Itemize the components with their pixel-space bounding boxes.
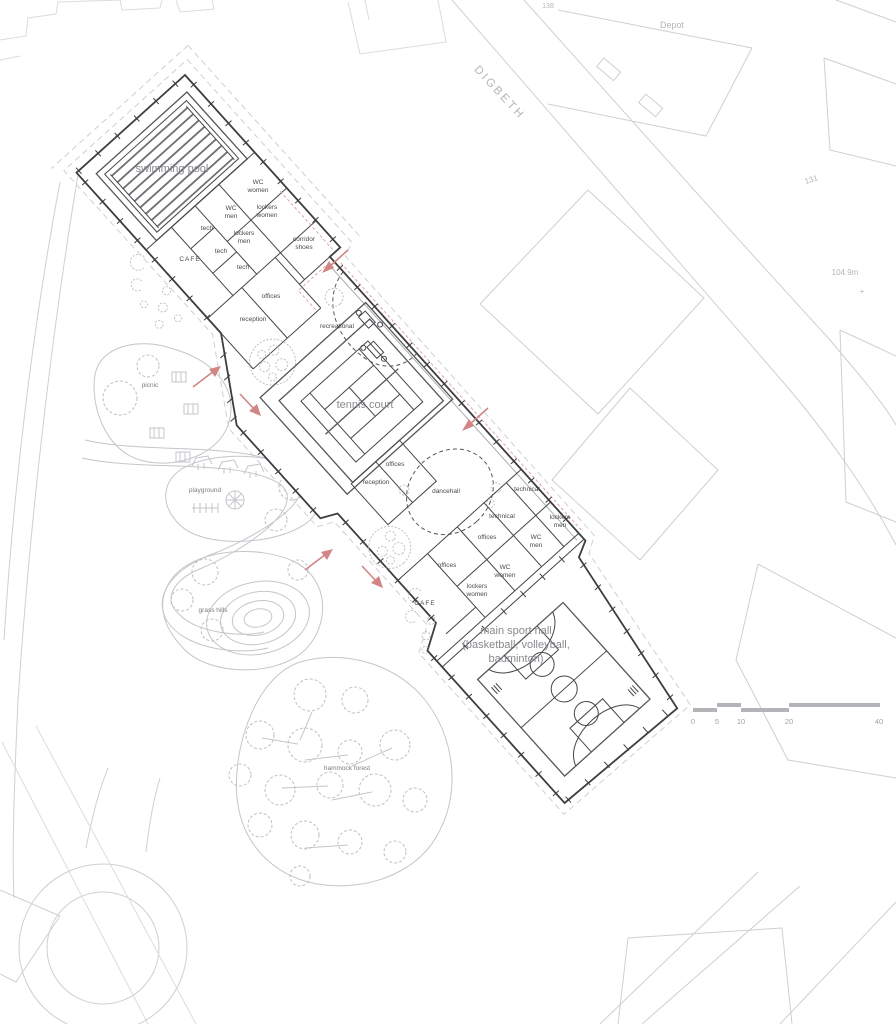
room-label-men: men <box>238 238 251 245</box>
scale-segment <box>789 703 880 707</box>
tree-icon <box>403 788 427 812</box>
hammock-lines <box>262 712 392 848</box>
scale-segment <box>693 708 717 712</box>
grass-hills-area <box>163 551 323 669</box>
climbing-frame-icon <box>192 503 218 513</box>
parked-car-icon <box>597 58 621 81</box>
room-label-tech: tech <box>237 264 250 271</box>
room-label-men: men <box>225 213 238 220</box>
east-block-building <box>480 190 704 414</box>
main-hall-label-line1: main sport hall <box>480 625 552 637</box>
room-label-technical: technical <box>514 486 540 493</box>
building-outline <box>33 75 721 807</box>
room-label-cafe: CAFE <box>414 600 435 607</box>
room-label-corridor: corridor <box>293 236 316 243</box>
scale-tick-10: 10 <box>737 717 745 726</box>
roundabout-inner-ring <box>47 892 159 1004</box>
tree-icon <box>192 559 218 585</box>
scale-tick-20: 20 <box>785 717 793 726</box>
hill-contour <box>242 606 273 629</box>
bottom-left-roads <box>2 726 196 1024</box>
tree-icon <box>291 821 319 849</box>
west-street-edges <box>4 175 78 898</box>
room-label-wc: WC <box>226 205 237 212</box>
roundabout-spinner-icon <box>226 491 244 509</box>
room-label-reception: reception <box>240 316 267 323</box>
top-left-building-outline <box>0 0 214 60</box>
room-label-offices: offices <box>386 461 405 468</box>
grass-hills-blob <box>163 551 323 669</box>
tree-icon <box>338 830 362 854</box>
scale-bar: 0 5 10 20 40 <box>691 703 883 726</box>
tree-icon <box>294 679 326 711</box>
room-label-wc: WC <box>531 534 542 541</box>
entrance-arrow-icon <box>305 549 333 570</box>
room-label-lockers: lockers <box>257 204 278 211</box>
scale-tick-5: 5 <box>715 717 719 726</box>
tree-icon <box>229 764 251 786</box>
room-label-shoes: shoes <box>295 244 313 251</box>
scale-segment <box>741 708 789 712</box>
park-winding-path <box>82 440 302 651</box>
swimming-pool-label: swimming pool <box>136 163 209 175</box>
room-label-lockers: lockers <box>550 514 571 521</box>
tree-icon <box>288 728 322 762</box>
far-right-building <box>840 330 896 522</box>
room-label-offices: offices <box>478 534 497 541</box>
scale-tick-40: 40 <box>875 717 883 726</box>
room-label-reception: reception <box>363 479 390 486</box>
scale-tick-0: 0 <box>691 717 695 726</box>
depot-building <box>548 10 752 136</box>
room-label-women: women <box>494 572 516 579</box>
entrance-arr ow-icon <box>362 566 383 588</box>
street-label-digbeth: DIGBETH <box>471 64 527 122</box>
tree-icon <box>384 841 406 863</box>
room-label-women: women <box>247 187 269 194</box>
building-number-131: 131 <box>803 173 819 186</box>
tree-icon <box>248 813 272 837</box>
roundabout-outer-ring <box>19 864 187 1024</box>
tree-icon <box>265 775 295 805</box>
room-label-women: women <box>466 591 488 598</box>
survey-point-mark: + <box>860 287 865 296</box>
grass-hills-label: grass hills <box>199 607 229 614</box>
tree-icon <box>290 866 310 886</box>
top-mid-building-outline <box>348 0 446 54</box>
room-label-dancehall: dancehall <box>432 488 460 495</box>
right-edge-building-top <box>824 0 896 166</box>
main-hall-label-line2: (basketball, volleyball, <box>462 639 570 651</box>
room-label-technical: technical <box>489 513 515 520</box>
tree-icon <box>103 381 137 415</box>
room-label-offices: offices <box>438 562 457 569</box>
scale-segment <box>717 703 741 707</box>
room-label-wc: WC <box>253 179 264 186</box>
room-label-offices: offices <box>262 293 281 300</box>
room-label-wc: WC <box>500 564 511 571</box>
tree-icon <box>317 772 343 798</box>
tree-icon <box>342 687 368 713</box>
picnic-label: picnic <box>142 382 159 389</box>
room-label-men: men <box>554 522 567 529</box>
room-label-lockers: lockers <box>467 583 488 590</box>
room-label-women: women <box>256 212 278 219</box>
room-label-cafe: CAFE <box>179 256 200 263</box>
tennis-court-label: tennis court <box>337 399 394 411</box>
room-label-tech: tech <box>215 248 228 255</box>
hill-contour <box>215 585 300 652</box>
tree-icon <box>338 740 362 764</box>
building-number-138: 138 <box>542 3 554 10</box>
room-label-men: men <box>530 542 543 549</box>
site-plan-drawing: swimming pool tennis court main sport ha… <box>0 0 896 1024</box>
parked-car-icon <box>639 94 663 117</box>
sports-centre-building <box>13 45 740 816</box>
depot-label: Depot <box>660 20 685 30</box>
main-hall-label-line3: badminton) <box>488 653 543 665</box>
tree-icon <box>201 619 223 641</box>
bottom-right-roads <box>600 872 896 1024</box>
lower-right-building <box>736 564 896 778</box>
room-label-tech: tech <box>201 225 214 232</box>
tree-icon <box>137 355 159 377</box>
playground-label: playground <box>189 487 222 494</box>
elevation-label: 104.9m <box>832 268 859 277</box>
site-plan: swimming pool tennis court main sport ha… <box>0 0 896 1024</box>
room-label-recreational: recreational <box>320 323 355 330</box>
tree-icon <box>171 589 193 611</box>
tree-icon <box>380 730 410 760</box>
entrance-arrow-icon <box>193 366 221 387</box>
digbeth-street-edge-1 <box>452 0 896 545</box>
tree-icon <box>246 721 274 749</box>
tree-icon <box>359 774 391 806</box>
hammock-forest-label: hammock forest <box>324 765 370 772</box>
room-label-lockers: lockers <box>234 230 255 237</box>
